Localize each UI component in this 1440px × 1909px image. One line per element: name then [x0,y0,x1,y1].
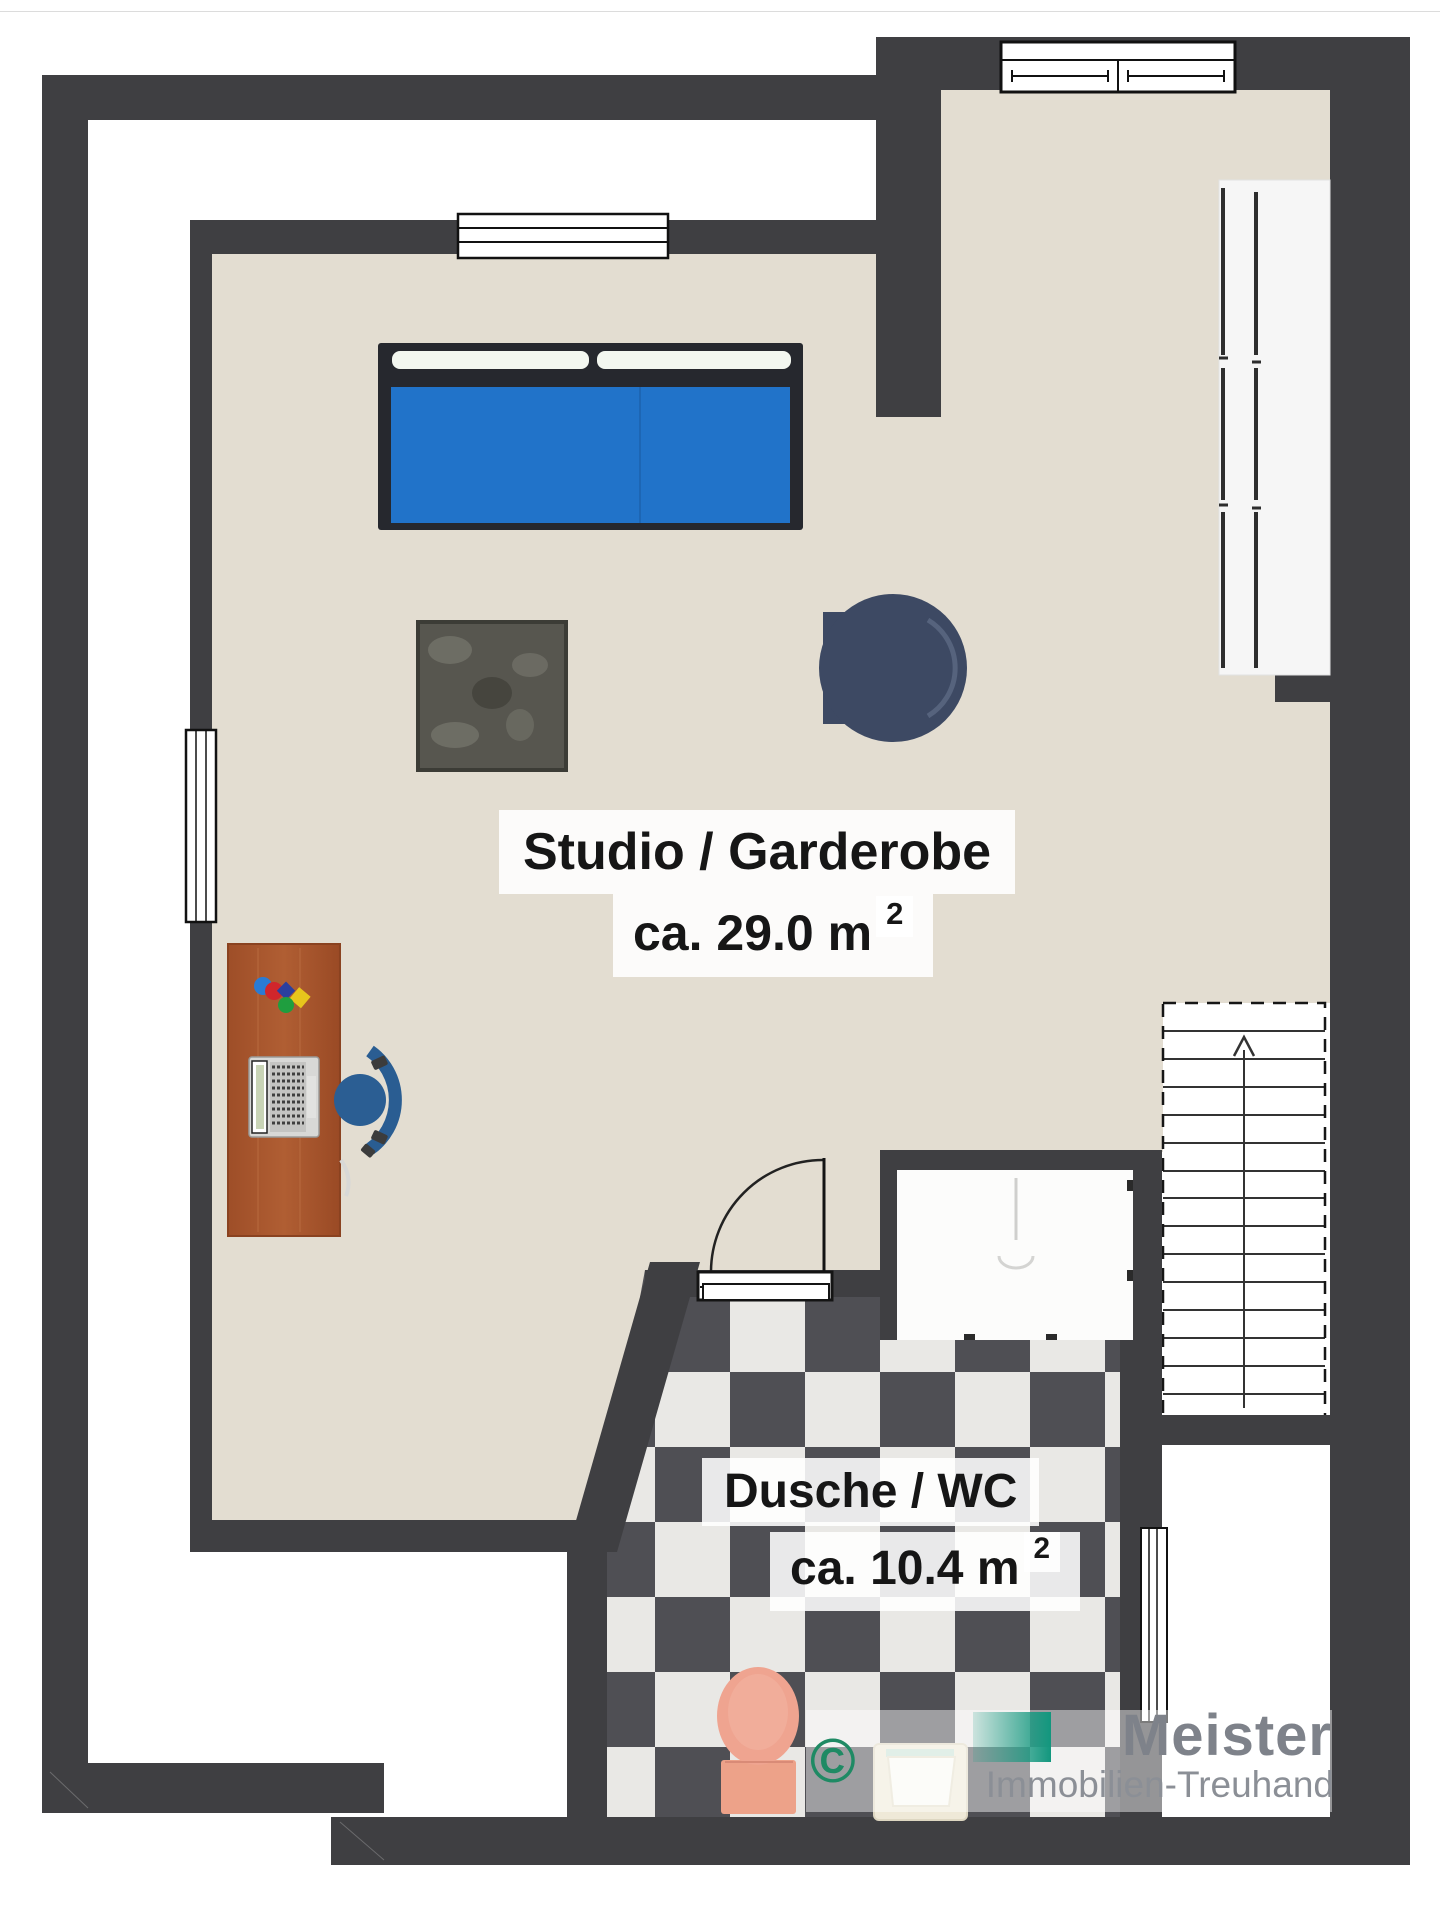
room-area-bath-value: ca. 10.4 m [790,1542,1020,1595]
window-studio-left [186,730,216,922]
room-label-studio: Studio / Garderobe [499,810,1015,894]
wardrobe [1219,180,1330,675]
laptop [249,1057,319,1137]
double-bed [378,343,803,530]
room-area-bath: ca. 10.4 m2 [770,1532,1080,1611]
rug [418,622,566,770]
shower [897,1170,1133,1340]
sink [874,1744,967,1820]
room-area-studio: ca. 29.0 m2 [613,894,933,977]
window-top-right [1001,42,1235,92]
window-studio-top [458,214,668,258]
window-bath-right [1141,1528,1167,1722]
room-label-bath: Dusche / WC [702,1458,1039,1526]
room-area-studio-value: ca. 29.0 m [633,905,872,961]
floor-plan: Studio / Garderobe ca. 29.0 m2 Dusche / … [0,0,1440,1909]
lounge-chair [819,594,967,742]
room-area-bath-exponent: 2 [1024,1532,1061,1572]
staircase [1163,1003,1325,1420]
room-area-studio-exponent: 2 [876,896,913,937]
toilet [717,1667,799,1814]
